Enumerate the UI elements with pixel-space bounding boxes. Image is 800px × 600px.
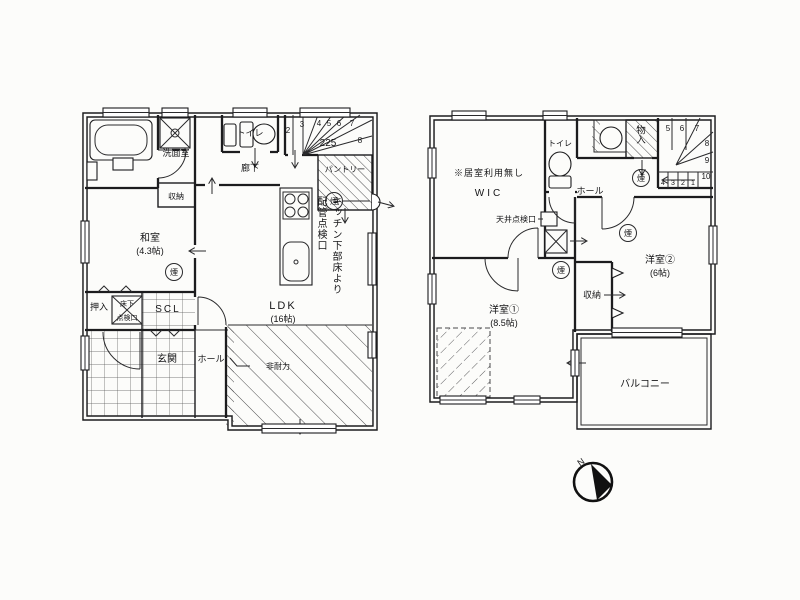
washitsu-label: 和室 <box>140 231 160 244</box>
ceiling-hatch-label: 天井点検口 <box>496 214 536 224</box>
basin-niche-hatch <box>592 120 600 152</box>
floor2-plan: 5 6 7 8 9 10 4 3 2 1 <box>428 111 717 429</box>
room1-dashed-area <box>437 328 490 397</box>
non-bearing-wall-band <box>226 325 234 428</box>
floor1-plan: 2 3 4 5 6 7 8 225 <box>81 108 393 433</box>
stairs1f: 2 3 4 5 6 7 8 225 <box>286 115 372 155</box>
closet1f-label: 収納 <box>168 191 184 201</box>
room1-size-label: (8.5帖) <box>490 317 518 328</box>
closet2f-label: 収納 <box>583 289 601 300</box>
scl-label: SCL <box>155 304 180 315</box>
smoke-detector: 煙 <box>166 264 183 281</box>
stair-num: 5 <box>327 119 332 128</box>
washroom-label: 洗面室 <box>162 147 189 158</box>
ldk-label: LDK <box>269 300 296 312</box>
smoke-detector: 煙 <box>620 225 637 242</box>
stair-num: 10 <box>702 172 711 181</box>
toilet2f-label: トイレ <box>548 139 572 148</box>
stair-num: 4 <box>317 119 322 128</box>
stair-num: 3 <box>671 180 675 187</box>
toilet2f-fixture <box>549 152 571 188</box>
underfloor-hatch-label2: 点検口 <box>117 313 138 322</box>
stair-num: 8 <box>705 139 710 148</box>
stair-num: 1 <box>691 180 695 187</box>
smoke-label: 煙 <box>624 229 632 238</box>
washer-pan <box>160 118 190 148</box>
room1-label: 洋室① <box>489 303 519 316</box>
toilet1f-label: トイレ <box>236 128 263 138</box>
pantry-label: パントリー <box>325 165 365 174</box>
stair-num: 9 <box>705 156 710 165</box>
hall2f-label: ホール <box>576 186 603 196</box>
hall-ldk-door <box>198 297 226 325</box>
no-living-note-label: ※居室利用無し <box>454 167 524 178</box>
genkan-tiles <box>142 330 195 415</box>
room2-size-label: (6帖) <box>650 267 670 278</box>
oshiire-label: 押入 <box>90 301 108 312</box>
genkan-label: 玄関 <box>157 352 177 365</box>
stair-num: 6 <box>680 124 685 133</box>
stair-num: 2 <box>286 126 291 135</box>
smoke-label: 煙 <box>557 266 565 275</box>
underfloor-hatch-label1: 床下 <box>120 299 134 308</box>
corridor-label: 廊下 <box>241 162 259 173</box>
stair-num: 6 <box>337 119 342 128</box>
balcony-label: バルコニー <box>620 378 670 390</box>
stair-num: 8 <box>358 136 363 145</box>
porch-tiles <box>85 330 142 418</box>
kitchen-pipe-note: キッチン下部床より 配管点検口 <box>313 196 343 316</box>
underfloor-hatch: 床下 点検口 <box>112 296 142 324</box>
bathtub-outer <box>90 120 152 160</box>
smoke-label: 煙 <box>170 268 178 277</box>
stair-num: 4 <box>661 180 665 187</box>
wic-label: WIC <box>475 188 503 199</box>
ceiling-hatch <box>538 212 557 226</box>
room2-label: 洋室② <box>645 253 675 266</box>
room1-door <box>485 258 518 291</box>
wic-door <box>508 228 538 258</box>
stairs2f: 5 6 7 8 9 10 4 3 2 1 <box>658 118 713 188</box>
kitchen-pipe-note-line2: 配管点検口 <box>313 196 328 316</box>
smoke-detector: 煙 <box>633 170 650 187</box>
non-bearing-label: 非耐力 <box>266 361 290 371</box>
closet2f-bifold-marks <box>612 268 623 318</box>
ldk-size-label: (16帖) <box>270 313 295 324</box>
stair-num: 5 <box>666 124 671 133</box>
stair-num: 3 <box>300 120 305 129</box>
monoire-label: 物入 <box>632 125 646 144</box>
deck-hatch-area <box>228 325 372 428</box>
compass: N <box>574 456 612 501</box>
bath-counter <box>113 158 133 170</box>
floorplan-drawing: 2 3 4 5 6 7 8 225 <box>0 0 800 600</box>
shaft-box <box>545 230 586 253</box>
stair-num: 7 <box>350 119 355 128</box>
floorplan-scan: 2 3 4 5 6 7 8 225 <box>0 0 800 600</box>
stair-num: 7 <box>695 124 700 133</box>
kitchen-unit <box>280 188 312 285</box>
smoke-detector: 煙 <box>553 262 570 279</box>
hall1f-label: ホール <box>197 354 224 364</box>
basin-fixture <box>600 127 622 149</box>
smoke-label: 煙 <box>637 174 645 183</box>
stair-rise-label: 225 <box>320 138 337 149</box>
stair-num: 2 <box>681 180 685 187</box>
bath-fixture <box>87 162 97 180</box>
kitchen-pipe-note-line1: キッチン下部床より <box>328 196 343 316</box>
washitsu-size-label: (4.3帖) <box>136 245 164 256</box>
